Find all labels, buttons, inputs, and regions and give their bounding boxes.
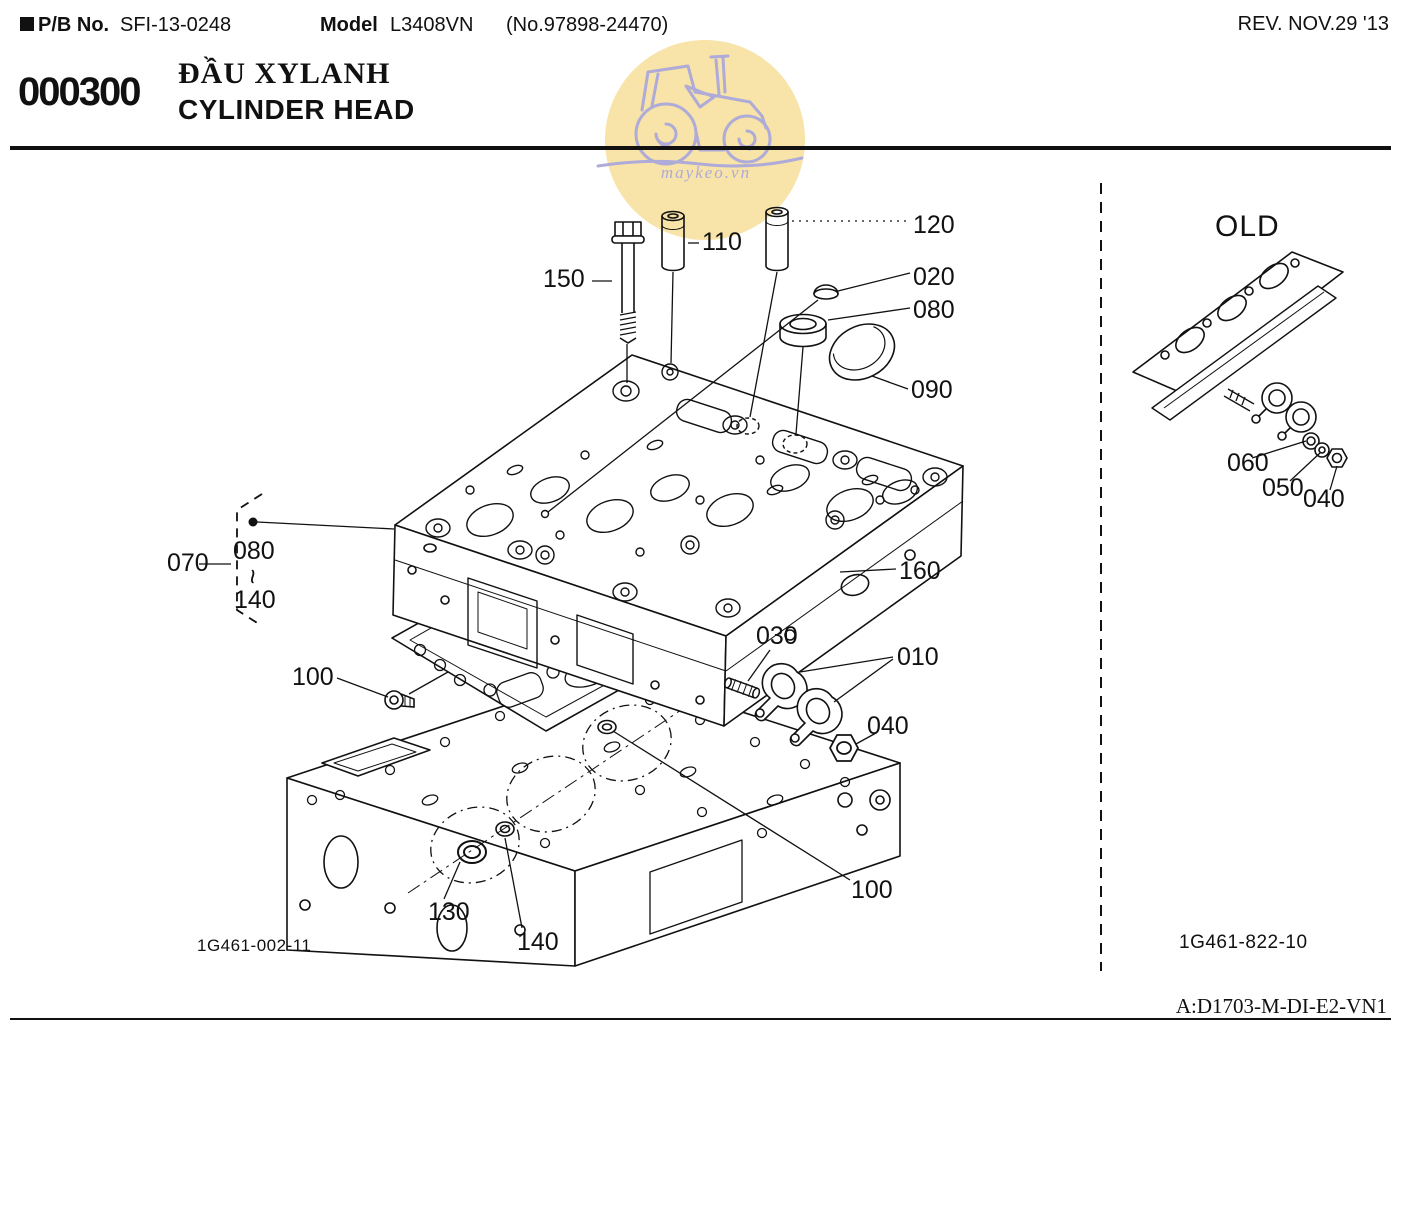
- seal-080-icon: [780, 315, 826, 347]
- part-label-140-range-end: 140: [234, 588, 276, 613]
- header-divider-rule: [10, 146, 1391, 150]
- old-nut-icon: [1327, 449, 1347, 467]
- exploded-diagram: maykeo.vn: [0, 0, 1401, 1221]
- nut-040-icon: [830, 735, 858, 761]
- part-label-090: 090: [911, 378, 953, 403]
- document-code: A:D1703-M-DI-E2-VN1: [1176, 994, 1387, 1019]
- part-label-100-right: 100: [851, 878, 893, 903]
- part-label-010: 010: [897, 645, 939, 670]
- part-label-040-main: 040: [867, 714, 909, 739]
- part-label-100-left: 100: [292, 665, 334, 690]
- part-label-range-tilde: ~: [238, 569, 265, 585]
- part-label-070: 070: [167, 551, 209, 576]
- watermark-text: maykeo.vn: [661, 163, 751, 182]
- part-label-150: 150: [543, 267, 585, 292]
- old-bracket-icons: [1252, 383, 1316, 440]
- part-label-080: 080: [913, 298, 955, 323]
- part-label-040-old: 040: [1303, 487, 1345, 512]
- cup-plug-090-icon: [820, 313, 904, 391]
- valve-guide-120-icon: [766, 208, 788, 271]
- old-panel-title: OLD: [1215, 210, 1280, 244]
- section-title-vietnamese: ĐẦU XYLANH: [178, 57, 391, 91]
- ref-number: (No.97898-24470): [506, 13, 668, 37]
- model-value: L3408VN: [390, 13, 473, 37]
- pb-label: P/B No.: [38, 13, 109, 37]
- catalog-page: { "header": { "pb_label": "P/B No.", "pb…: [0, 0, 1401, 1221]
- part-label-030: 030: [756, 624, 798, 649]
- figure-code-main: 1G461-002-11: [197, 936, 311, 956]
- part-label-020: 020: [913, 265, 955, 290]
- old-stud-icon: [1224, 389, 1254, 411]
- part-label-140-bottom: 140: [517, 930, 559, 955]
- part-label-160: 160: [899, 559, 941, 584]
- pb-value: SFI-13-0248: [120, 13, 231, 37]
- figure-code-old: 1G461-822-10: [1179, 932, 1308, 954]
- part-label-110: 110: [702, 230, 742, 255]
- section-code: 000300: [18, 70, 139, 115]
- part-label-130: 130: [428, 900, 470, 925]
- revision-date: REV. NOV.29 '13: [1238, 13, 1389, 36]
- old-washer-icons: [1303, 433, 1329, 457]
- pb-marker-square: [20, 17, 34, 31]
- part-label-050-old: 050: [1262, 476, 1304, 501]
- part-label-060-old: 060: [1227, 451, 1269, 476]
- part-label-120: 120: [913, 213, 955, 238]
- section-title-english: CYLINDER HEAD: [178, 94, 415, 126]
- head-bolt-150-icon: [612, 222, 644, 343]
- plug-020-icon: [814, 285, 838, 299]
- part-label-080-range-start: 080: [233, 539, 275, 564]
- model-label: Model: [320, 13, 378, 37]
